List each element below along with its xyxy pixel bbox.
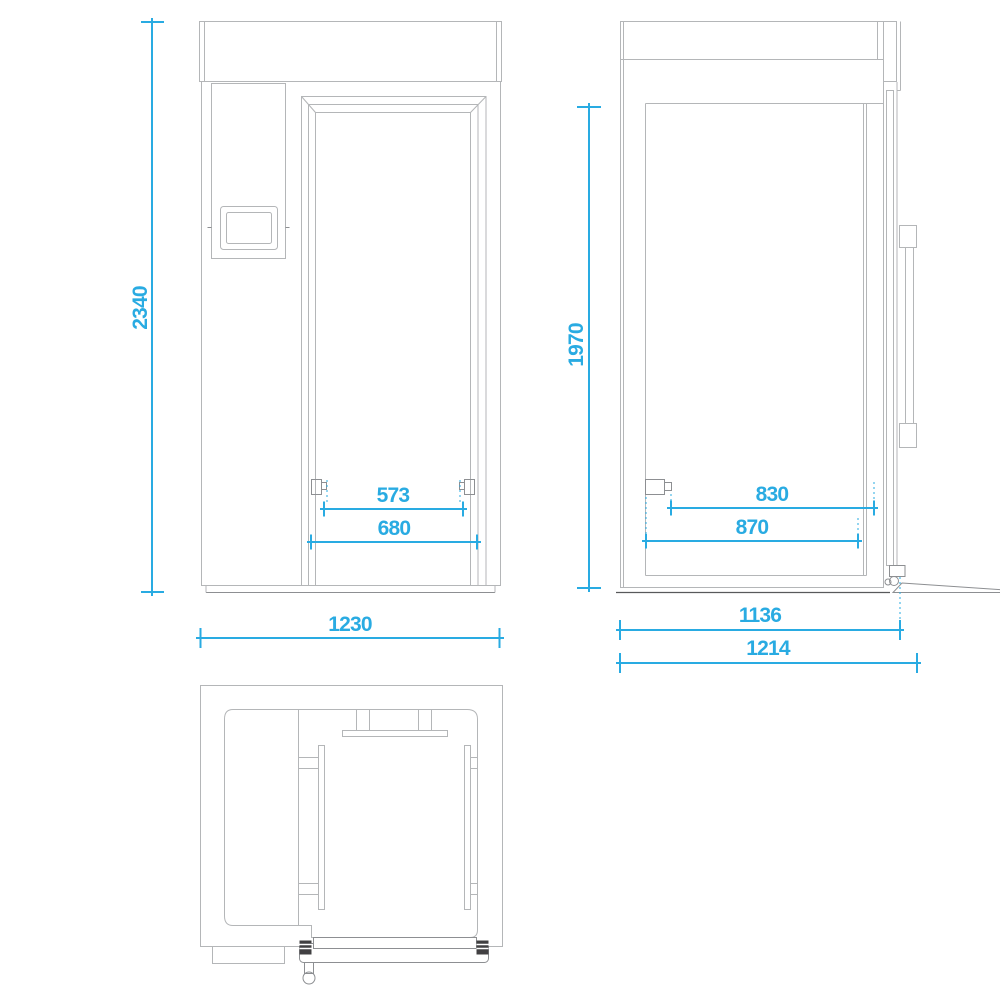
dim-label-overall-height: 2340: [129, 286, 152, 330]
control-panel: [208, 84, 290, 259]
dim-label-door-height: 1970: [565, 323, 588, 367]
door-latch-keeper: [646, 480, 672, 495]
dimension-annotations: 2340 573 680 1230 1970: [129, 18, 921, 673]
dimension-side-overall-depth: 1214: [616, 637, 921, 673]
front-view: [200, 22, 502, 593]
door-latch-right: [460, 480, 475, 495]
dim-label-lower-depth: 870: [736, 516, 769, 539]
dim-label-door-frame-width: 680: [378, 517, 411, 540]
plan-door-hinge-left: [300, 941, 312, 955]
rail-left: [299, 746, 325, 910]
dimension-front-overall-height: 2340: [129, 18, 164, 596]
plan-interior: [225, 710, 478, 938]
dimension-door-opening-width: 573: [320, 480, 467, 517]
three-view-drawing: 2340 573 680 1230 1970: [0, 0, 1000, 1000]
plan-door: [300, 938, 489, 985]
dimension-door-frame-width: 680: [307, 517, 481, 550]
dimension-side-upper-depth: 830: [667, 482, 878, 516]
top-panel: [200, 22, 502, 82]
door-hinge-lower: [900, 424, 917, 448]
cabinet-body: [202, 82, 501, 593]
dim-label-door-opening-width: 573: [377, 484, 410, 507]
door-latch-left: [312, 480, 327, 495]
plan-view: [201, 686, 503, 985]
dimension-front-overall-width: 1230: [196, 613, 504, 648]
side-view: [616, 22, 1000, 593]
door-hinge-upper: [900, 226, 917, 248]
dimension-side-body-depth: 1136: [616, 577, 904, 640]
dim-label-upper-depth: 830: [756, 483, 789, 506]
dim-label-body-depth: 1136: [739, 604, 781, 627]
dim-label-overall-width: 1230: [328, 613, 372, 636]
technical-drawing-canvas: 2340 573 680 1230 1970: [0, 0, 1000, 1000]
door-frame: [302, 97, 487, 586]
side-body: [621, 22, 884, 588]
compressor-tray: [213, 947, 285, 964]
dim-label-overall-depth: 1214: [746, 637, 791, 660]
rail-right: [465, 746, 478, 910]
plan-door-hinge-right: [477, 941, 489, 955]
dimension-side-lower-depth: 870: [642, 497, 862, 549]
door-handle-bar: [906, 248, 914, 424]
door-edge: [884, 22, 906, 577]
dimension-side-door-height: 1970: [565, 103, 601, 592]
plan-door-handle: [303, 963, 315, 985]
door-roller: [885, 577, 899, 586]
evaporator-unit: [343, 710, 448, 737]
plan-outline: [201, 686, 503, 947]
control-display: [221, 207, 278, 250]
